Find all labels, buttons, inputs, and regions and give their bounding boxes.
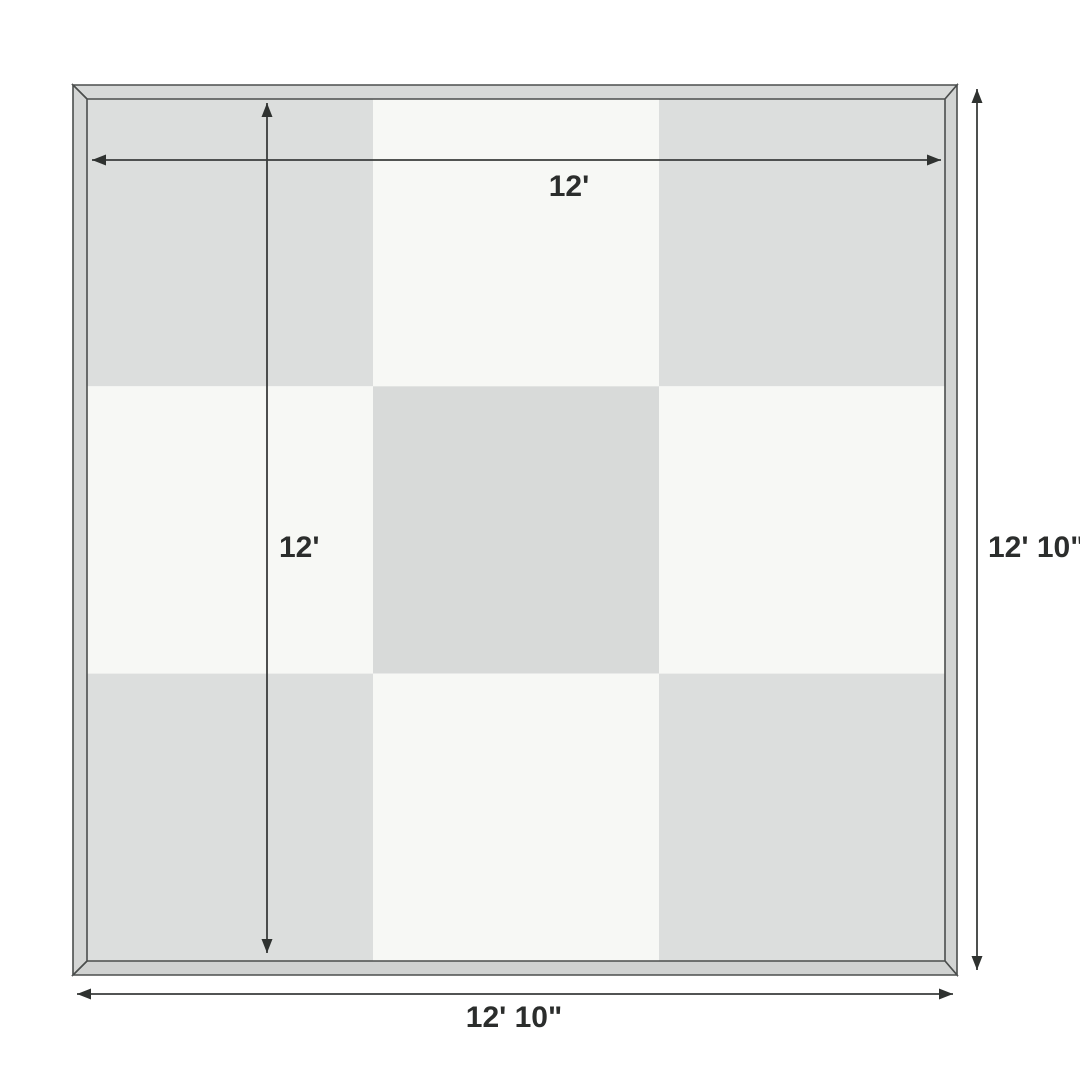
mat-tile-r0c0 [87, 99, 373, 386]
mat-tile-r2c1 [373, 674, 659, 961]
mat-frame-top [73, 85, 957, 99]
outer-width-dimension: 12' 10" [77, 994, 953, 1034]
outer-width-label: 12' 10" [466, 1001, 562, 1034]
outer-height-dimension: 12' 10" [977, 89, 1080, 970]
mat-dimension-diagram: 12' 12' 12' 10" 12' 10" [0, 0, 1080, 1080]
mat-tile-grid [87, 99, 945, 961]
diagram-canvas: 12' 12' 12' 10" 12' 10" [0, 0, 1080, 1080]
mat-tile-r1c1 [373, 386, 659, 673]
mat-tile-r2c0 [87, 674, 373, 961]
mat-tile-r0c2 [659, 99, 945, 386]
mat-tile-r2c2 [659, 674, 945, 961]
mat-tile-r0c1 [373, 99, 659, 386]
outer-height-label: 12' 10" [988, 531, 1080, 564]
mat-frame-left [73, 85, 87, 975]
inner-width-label: 12' [549, 170, 590, 203]
mat-frame-bottom [73, 961, 957, 975]
mat-tile-r1c0 [87, 386, 373, 673]
mat-tile-r1c2 [659, 386, 945, 673]
inner-height-label: 12' [279, 531, 320, 564]
mat-frame-right [945, 85, 957, 975]
